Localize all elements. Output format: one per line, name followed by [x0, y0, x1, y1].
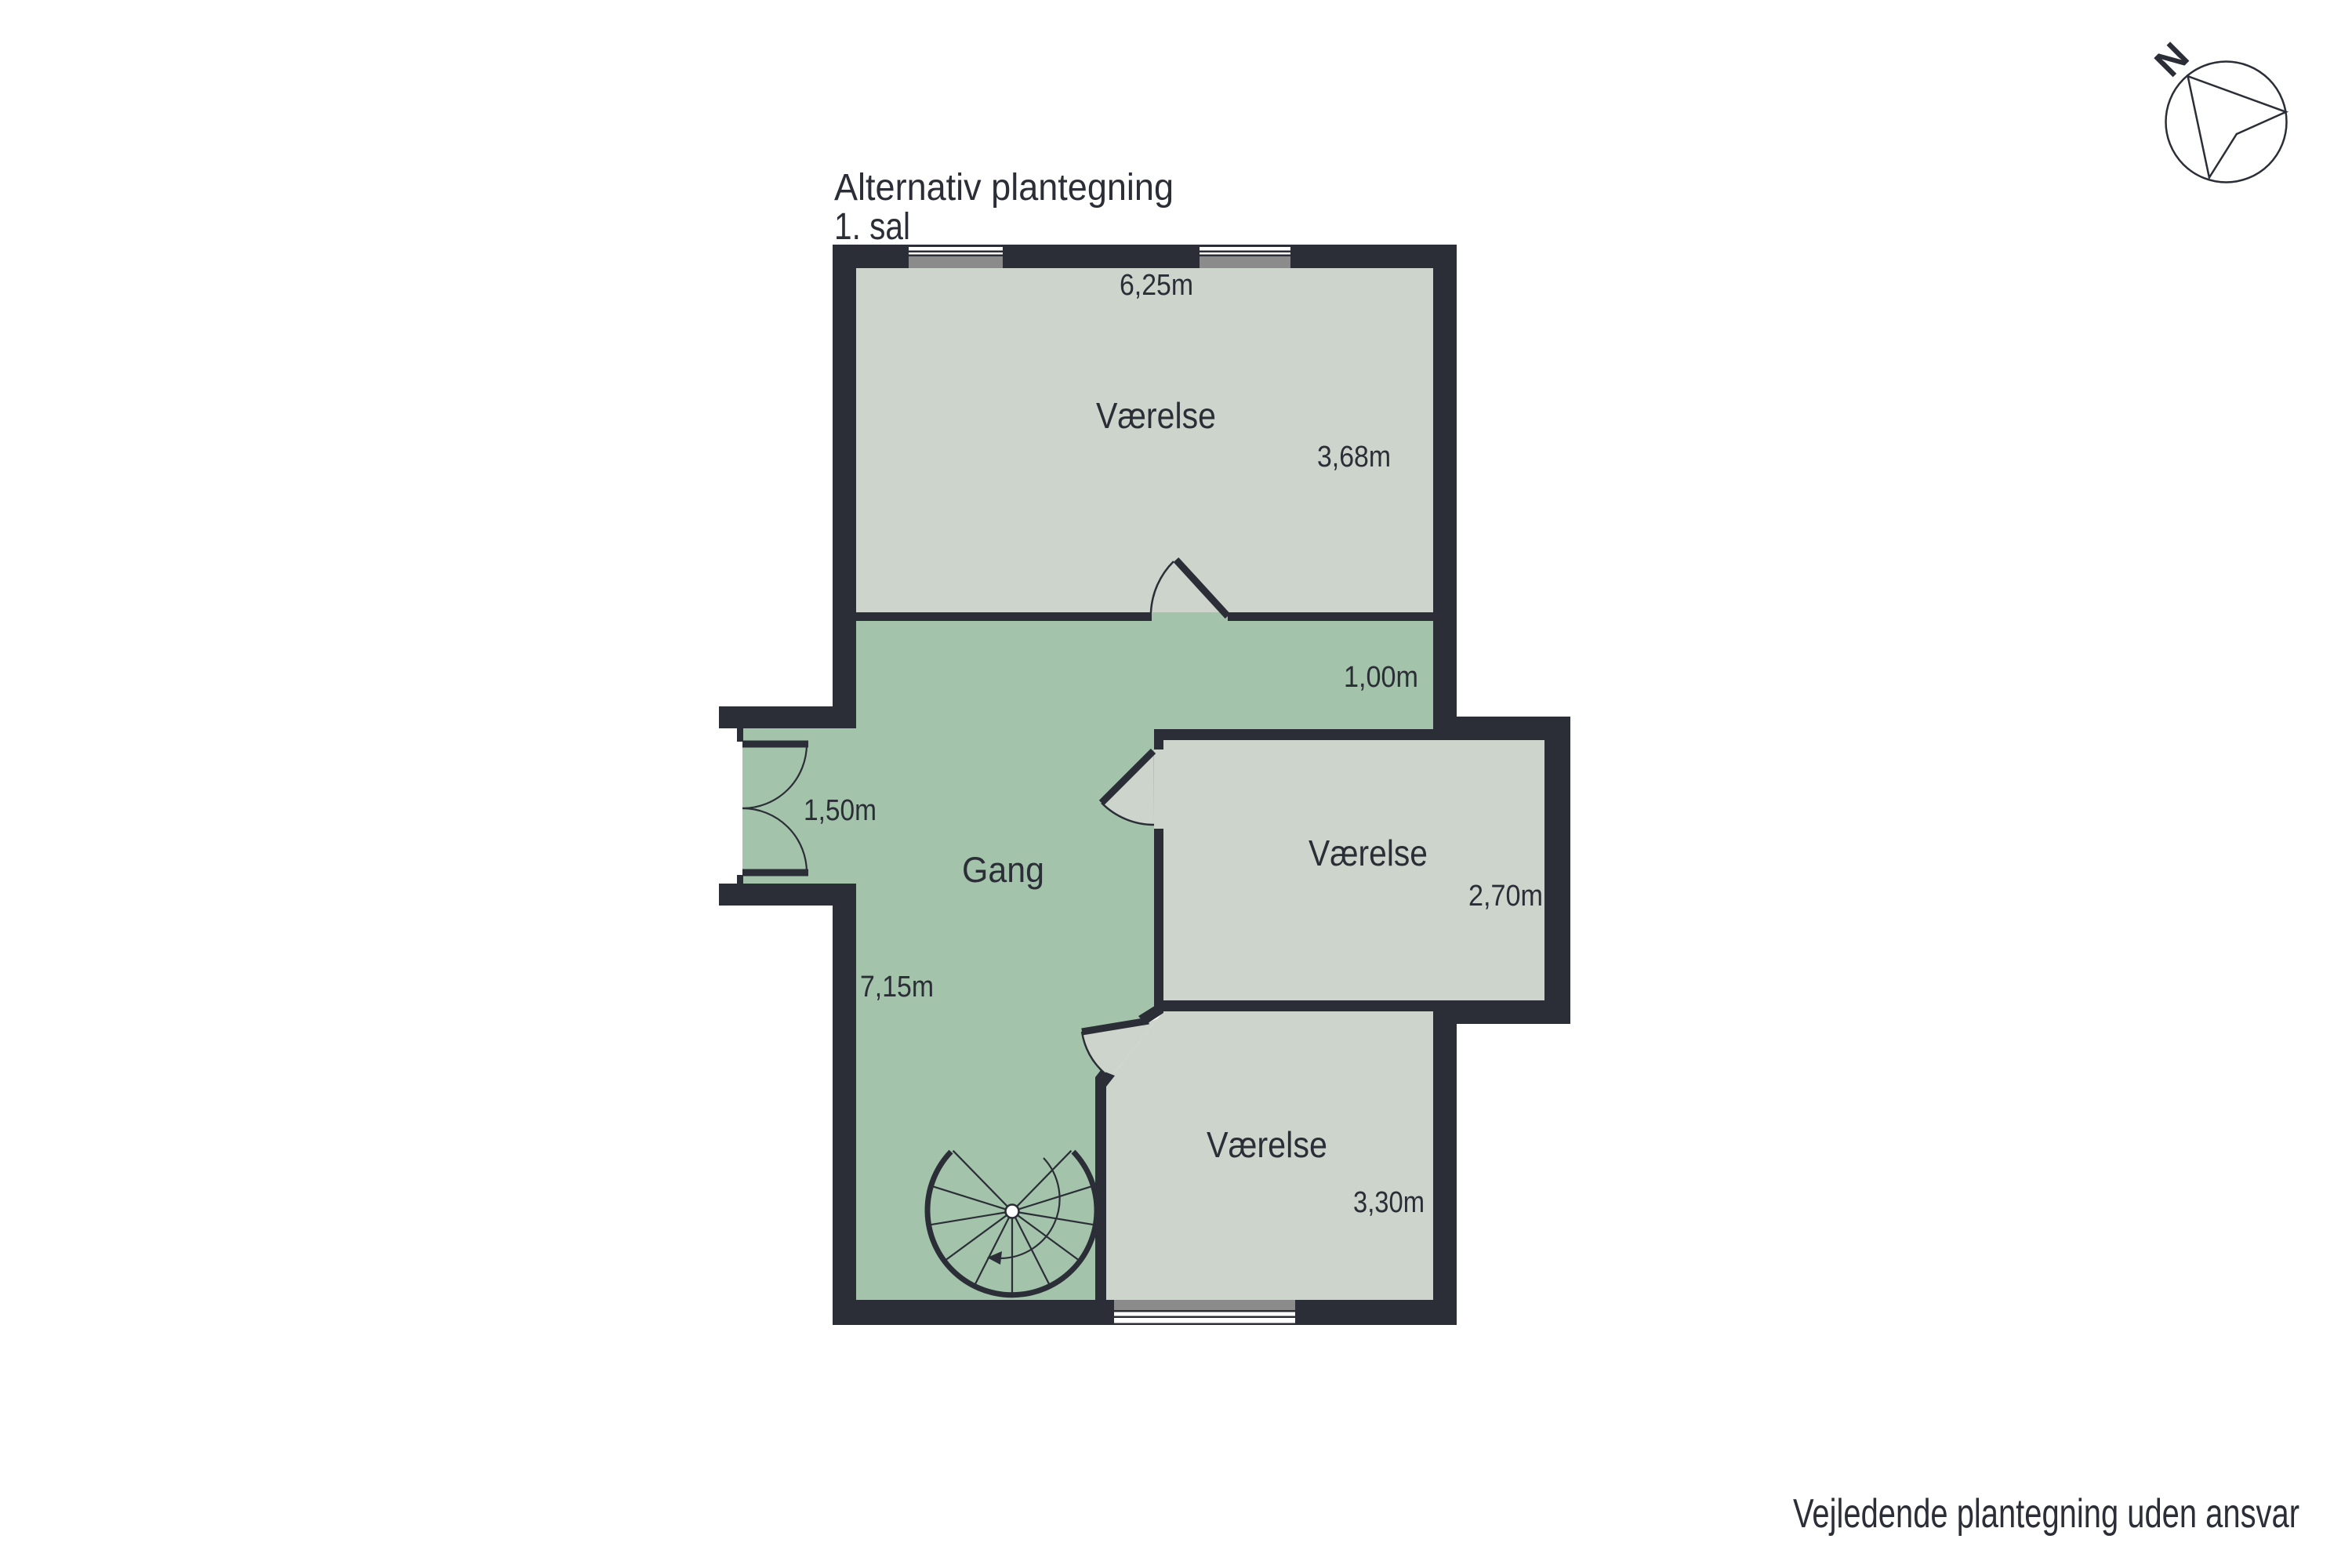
svg-text:1. sal: 1. sal: [834, 206, 910, 248]
svg-text:3,30m: 3,30m: [1353, 1186, 1425, 1219]
svg-text:Vejledende plantegning uden an: Vejledende plantegning uden ansvar: [1793, 1491, 2299, 1537]
svg-text:2,70m: 2,70m: [1468, 880, 1543, 913]
svg-text:Værelse: Værelse: [1308, 833, 1428, 873]
svg-text:Alternativ plantegning: Alternativ plantegning: [834, 167, 1174, 209]
svg-text:6,25m: 6,25m: [1120, 269, 1193, 302]
svg-text:Gang: Gang: [962, 850, 1044, 890]
svg-text:1,50m: 1,50m: [804, 794, 877, 827]
svg-text:3,68m: 3,68m: [1317, 441, 1391, 474]
svg-text:1,00m: 1,00m: [1344, 661, 1418, 694]
svg-text:Værelse: Værelse: [1207, 1124, 1327, 1165]
svg-text:Værelse: Værelse: [1096, 395, 1216, 436]
svg-text:7,15m: 7,15m: [860, 971, 934, 1004]
